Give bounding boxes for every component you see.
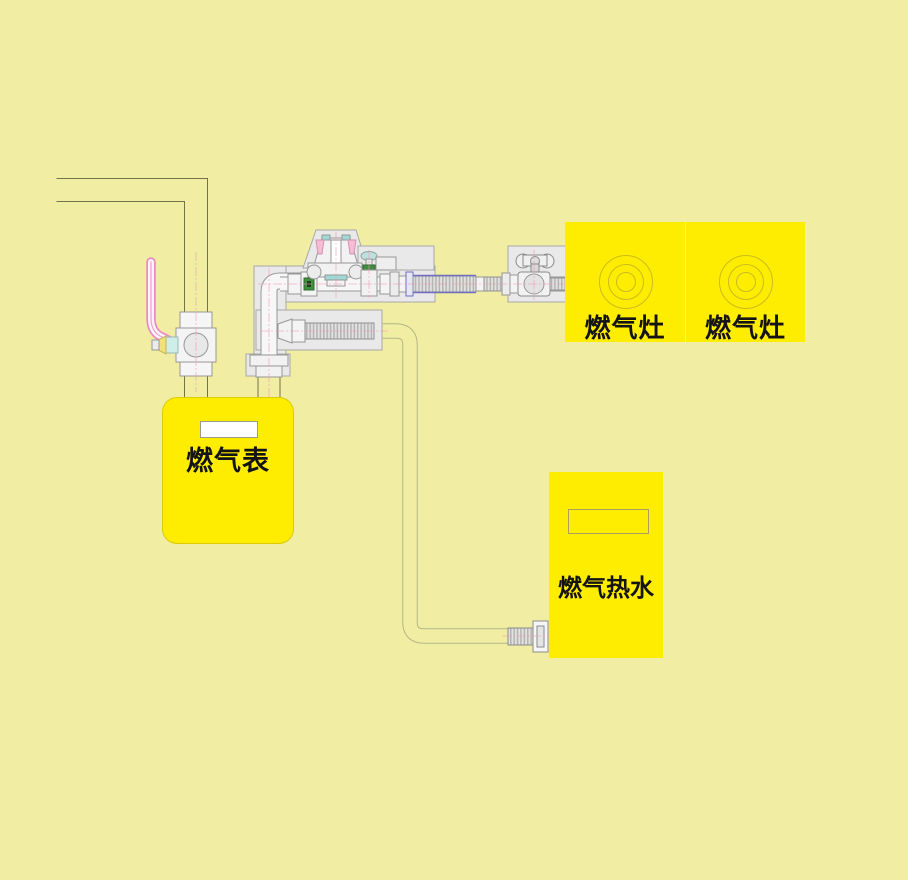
- piping-diagram-graphics: [0, 0, 908, 880]
- heater-supply-pipe: [372, 331, 512, 636]
- gas-meter-label: 燃气表: [163, 448, 293, 475]
- heater-connector: [508, 621, 548, 652]
- burner-ring-icon: [616, 272, 636, 292]
- gas-stove-left-label: 燃气灶: [565, 316, 685, 342]
- diagram-canvas: 燃气表 燃气灶 燃气灶 燃气热水: [0, 0, 908, 880]
- gas-stove-left-box: 燃气灶: [565, 222, 685, 342]
- gas-stove-right-box: 燃气灶: [686, 222, 805, 342]
- gas-stove-right-label: 燃气灶: [686, 316, 805, 342]
- gas-meter-box: 燃气表: [162, 397, 294, 544]
- water-heater-box: 燃气热水: [549, 472, 663, 658]
- burner-ring-icon: [736, 272, 756, 292]
- meter-display-window: [200, 421, 258, 438]
- heater-panel-window: [568, 509, 649, 534]
- wall-supply-riser: [55, 178, 196, 402]
- water-heater-label: 燃气热水: [549, 576, 663, 600]
